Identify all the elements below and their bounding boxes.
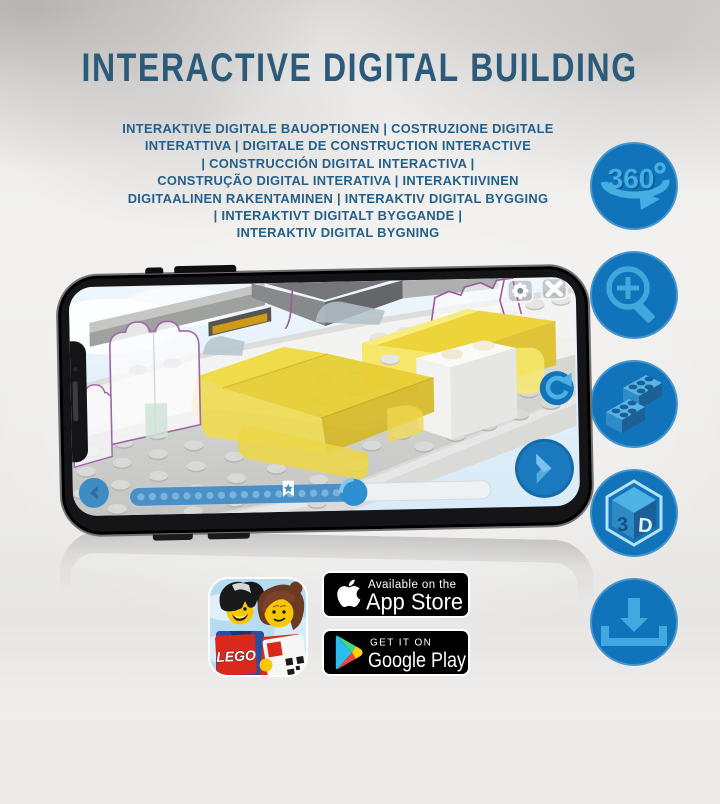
svg-text:App Store: App Store — [366, 589, 463, 615]
svg-text:Google Play: Google Play — [368, 648, 466, 672]
svg-text:LEGO: LEGO — [216, 647, 257, 665]
svg-text:D: D — [637, 515, 653, 538]
svg-text:3: 3 — [616, 514, 629, 537]
svg-text:GET IT ON: GET IT ON — [370, 638, 432, 649]
